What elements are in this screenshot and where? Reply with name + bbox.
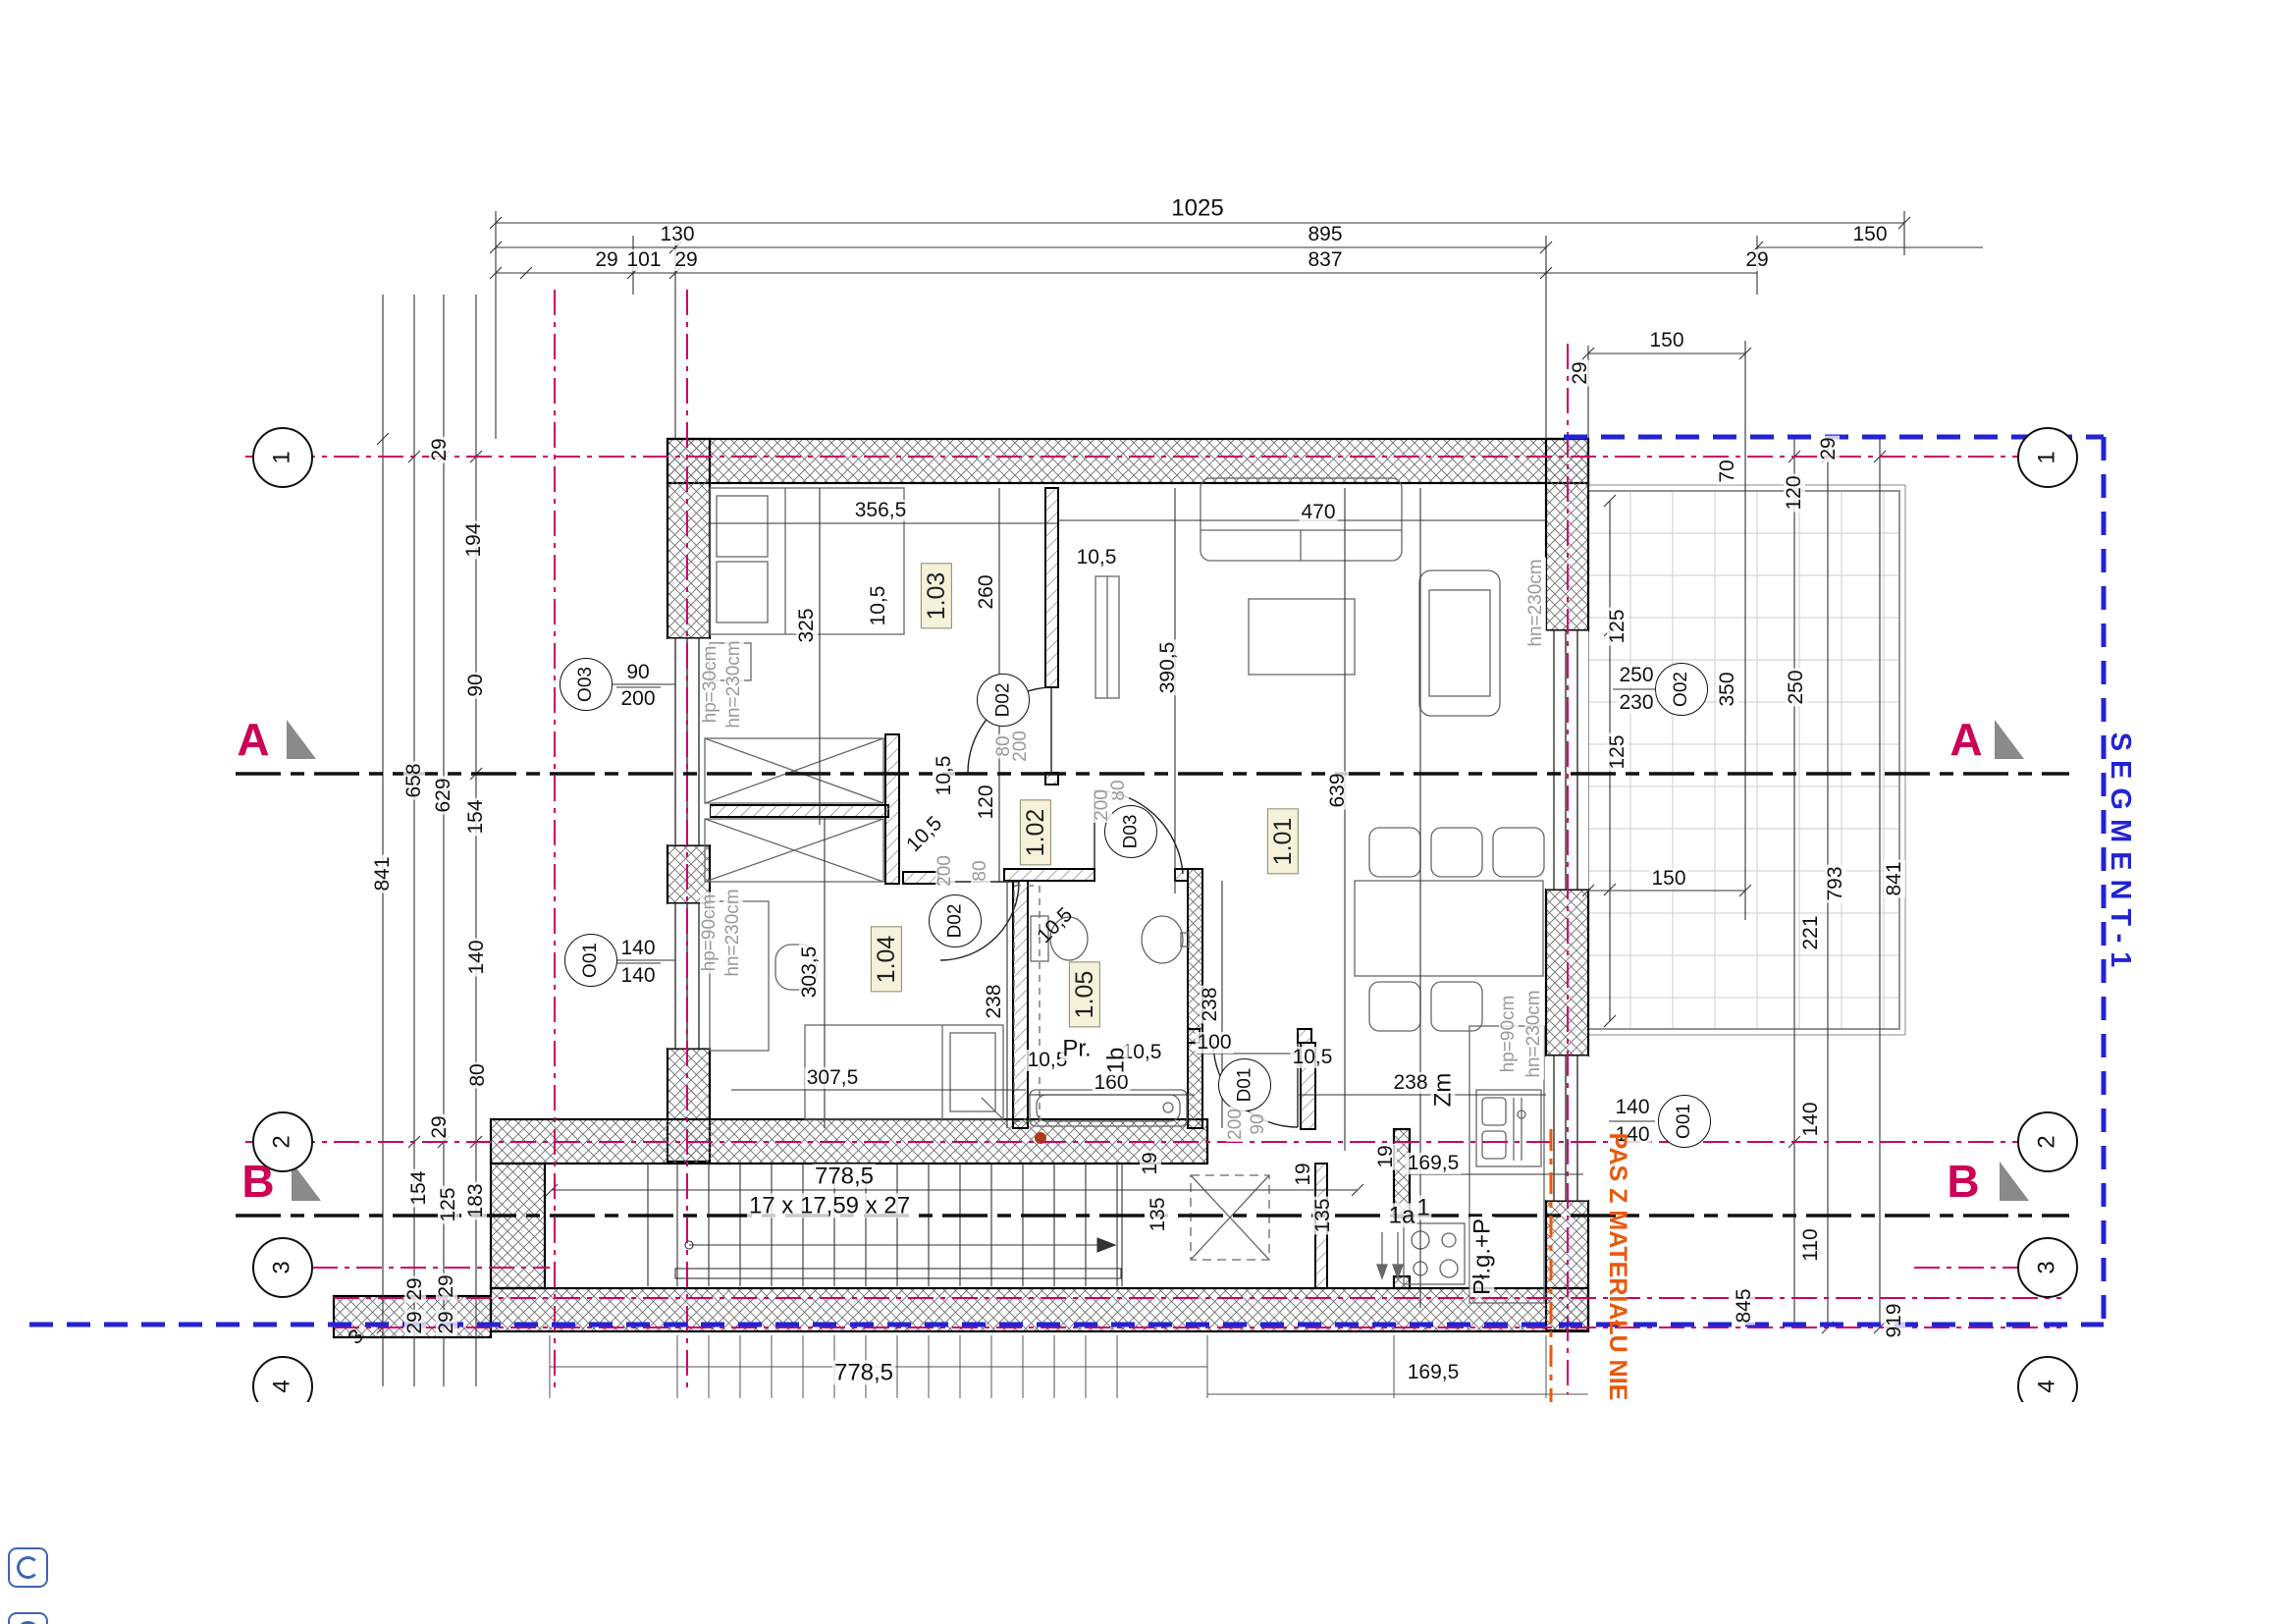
- furniture: [705, 478, 1544, 1303]
- dimension-lines: [377, 211, 1983, 1386]
- floor-plan-page: 12341234O03O01O02O01D02D02D03D01 1025130…: [0, 0, 2296, 1624]
- watermark-logo: [8, 1547, 48, 1588]
- watermark-logo-partial: [8, 1612, 48, 1624]
- exterior-walls: [334, 439, 1588, 1337]
- drawing-crop-mask: [0, 1402, 2296, 1624]
- stairs-mirrored: [550, 1335, 1588, 1398]
- terrace: [1588, 491, 1899, 1029]
- floor-plan-linework: [0, 0, 2296, 1624]
- doors: [940, 687, 1298, 1127]
- stairs: [648, 1164, 1122, 1286]
